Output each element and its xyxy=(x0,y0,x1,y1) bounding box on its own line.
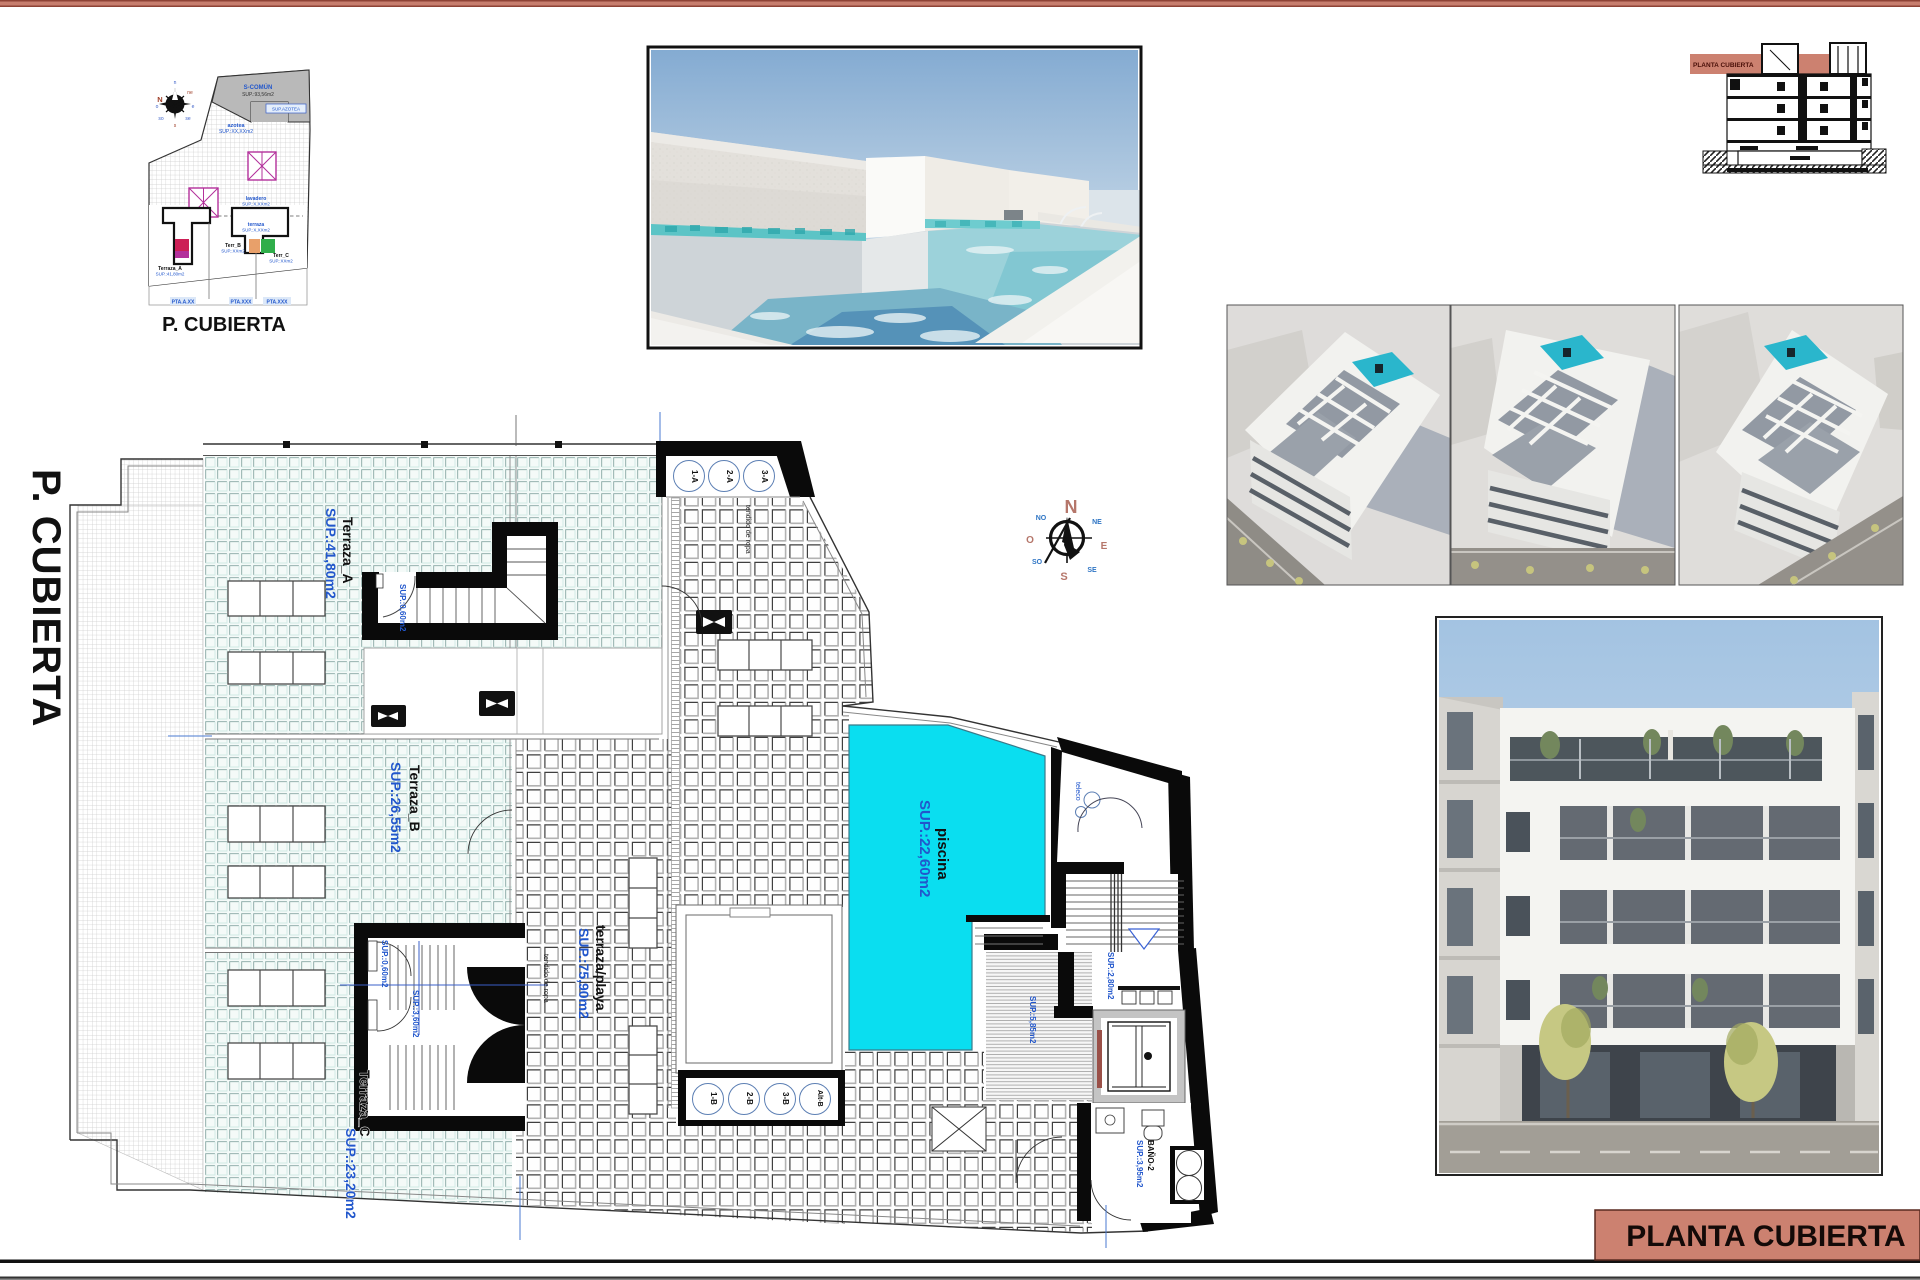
svg-text:SUP.:0,60m2: SUP.:0,60m2 xyxy=(380,940,389,988)
svg-text:SUP.:XXm2: SUP.:XXm2 xyxy=(221,249,245,254)
svg-text:3-A: 3-A xyxy=(760,470,769,483)
svg-text:SUP.:23,20m2: SUP.:23,20m2 xyxy=(343,1128,359,1219)
svg-text:1-A: 1-A xyxy=(690,470,699,483)
svg-text:SUP.:3,60m2: SUP.:3,60m2 xyxy=(411,990,420,1038)
svg-text:teleco: teleco xyxy=(1074,782,1081,801)
svg-text:SUP.AZOTEA: SUP.AZOTEA xyxy=(272,107,300,112)
svg-text:P. CUBIERTA: P. CUBIERTA xyxy=(24,469,68,727)
svg-text:PTA.XXX: PTA.XXX xyxy=(266,300,288,306)
svg-text:3-B: 3-B xyxy=(781,1092,790,1105)
svg-text:tendido de ropa: tendido de ropa xyxy=(744,505,751,554)
svg-text:o: o xyxy=(156,104,159,110)
svg-text:tendido de ropa: tendido de ropa xyxy=(542,954,549,1003)
svg-text:SUP.:3,95m2: SUP.:3,95m2 xyxy=(1135,1140,1144,1188)
svg-text:piscina: piscina xyxy=(934,828,951,880)
svg-text:n: n xyxy=(174,80,177,86)
svg-text:Terraza_B: Terraza_B xyxy=(407,765,423,832)
svg-text:SUP.:75,90m2: SUP.:75,90m2 xyxy=(576,928,592,1019)
svg-text:S: S xyxy=(1060,571,1067,583)
svg-text:BAÑO-2: BAÑO-2 xyxy=(1146,1140,1155,1171)
svg-text:S-COMÚN: S-COMÚN xyxy=(244,84,273,91)
svg-text:NO: NO xyxy=(1036,515,1047,522)
svg-text:SUP.:0,60m2: SUP.:0,60m2 xyxy=(398,584,407,632)
svg-text:PTA.A.XX: PTA.A.XX xyxy=(172,300,195,306)
svg-text:PLANTA CUBIERTA: PLANTA CUBIERTA xyxy=(1693,62,1754,69)
svg-text:Terraza_A: Terraza_A xyxy=(340,517,356,584)
svg-text:2-A: 2-A xyxy=(725,470,734,483)
svg-text:SUP.:XXm2: SUP.:XXm2 xyxy=(269,259,293,264)
svg-text:e: e xyxy=(192,104,195,110)
svg-text:SUP.:41,80m2: SUP.:41,80m2 xyxy=(323,508,339,599)
svg-text:SUP.:X,XXm2: SUP.:X,XXm2 xyxy=(242,228,270,233)
svg-text:so: so xyxy=(158,116,164,122)
svg-text:se: se xyxy=(185,116,191,122)
svg-text:Alt-B: Alt-B xyxy=(816,1090,823,1107)
svg-text:N: N xyxy=(157,95,162,104)
svg-text:SUP.:5,85m2: SUP.:5,85m2 xyxy=(1028,996,1037,1044)
svg-text:terraza/playa: terraza/playa xyxy=(593,925,609,1011)
svg-text:O: O xyxy=(1026,535,1034,546)
svg-text:SUP.:X,XXm2: SUP.:X,XXm2 xyxy=(242,202,270,207)
svg-text:2-B: 2-B xyxy=(745,1092,754,1105)
svg-text:PTA.XXX: PTA.XXX xyxy=(230,300,252,306)
svg-text:SUP.:26,55m2: SUP.:26,55m2 xyxy=(388,762,404,853)
svg-text:SUP.:22,60m2: SUP.:22,60m2 xyxy=(916,800,933,897)
svg-text:N: N xyxy=(1065,497,1078,517)
svg-text:NE: NE xyxy=(1092,519,1102,526)
svg-text:SO: SO xyxy=(1032,559,1043,566)
svg-text:ne: ne xyxy=(187,90,193,96)
svg-text:P. CUBIERTA: P. CUBIERTA xyxy=(162,314,286,336)
svg-text:PLANTA CUBIERTA: PLANTA CUBIERTA xyxy=(1626,1220,1905,1253)
svg-text:Terraza_C: Terraza_C xyxy=(357,1070,373,1137)
svg-text:SUP.:XX,XXm2: SUP.:XX,XXm2 xyxy=(219,129,253,135)
svg-text:E: E xyxy=(1101,541,1108,552)
svg-text:SUP.:41,80m2: SUP.:41,80m2 xyxy=(156,272,185,277)
svg-text:SUP.:93,56m2: SUP.:93,56m2 xyxy=(242,92,274,98)
svg-text:s: s xyxy=(174,123,177,129)
svg-text:SUP.:2,80m2: SUP.:2,80m2 xyxy=(1106,952,1115,1000)
svg-text:SE: SE xyxy=(1087,567,1097,574)
svg-text:1-B: 1-B xyxy=(709,1092,718,1105)
